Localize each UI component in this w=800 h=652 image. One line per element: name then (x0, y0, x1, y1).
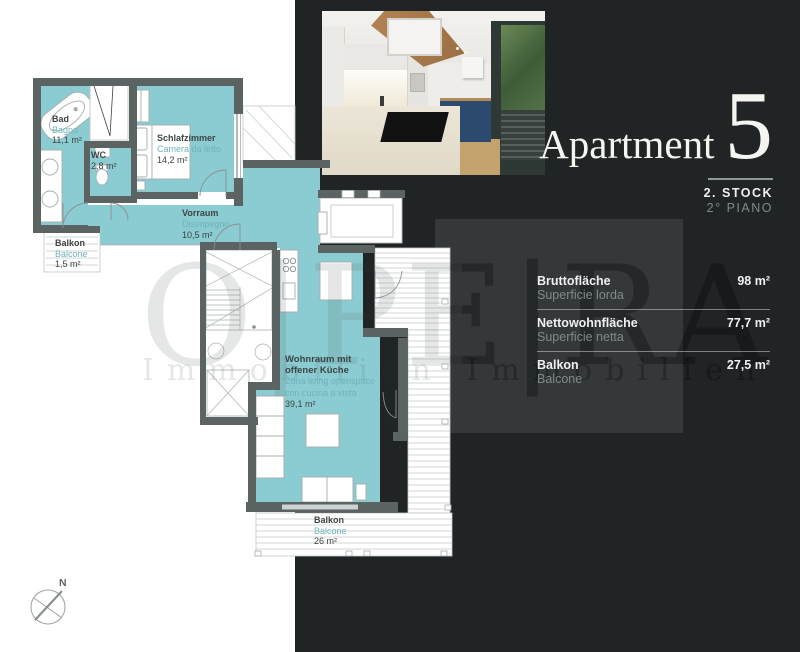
room-label-bad: Bad Bagno 11,1 m² (52, 114, 82, 146)
room-label-schlafzimmer: Schlafzimmer Camera da letto 14,2 m² (157, 133, 221, 166)
compass (31, 590, 65, 624)
coffee-table (306, 414, 339, 447)
vanity (38, 150, 62, 222)
side-table (356, 484, 366, 500)
compass-north-label: N (59, 577, 67, 589)
room-label-balkon-klein: Balkon Balcone 1,5 m² (55, 238, 88, 270)
pillow-1 (136, 128, 147, 150)
room-label-wc: WC 2,8 m² (91, 150, 117, 172)
room-label-wohnraum: Wohnraum mit offener Küche Zona living o… (285, 354, 375, 410)
kitchen-island (320, 262, 352, 300)
room-dining (243, 166, 320, 248)
room-label-balkon-gross: Balkon Balcone 26 m² (314, 515, 347, 547)
floor-plan (0, 0, 800, 652)
sofa-bottom (302, 477, 353, 502)
pillow-2 (136, 155, 147, 177)
brochure-page: O|PE|RA Immobilien Immobilien (0, 0, 800, 652)
room-label-vorraum: Vorraum Disimpegno 10,5 m² (182, 208, 230, 241)
balcony-large (256, 513, 452, 556)
sofa-left (256, 396, 284, 478)
chair (318, 212, 327, 234)
